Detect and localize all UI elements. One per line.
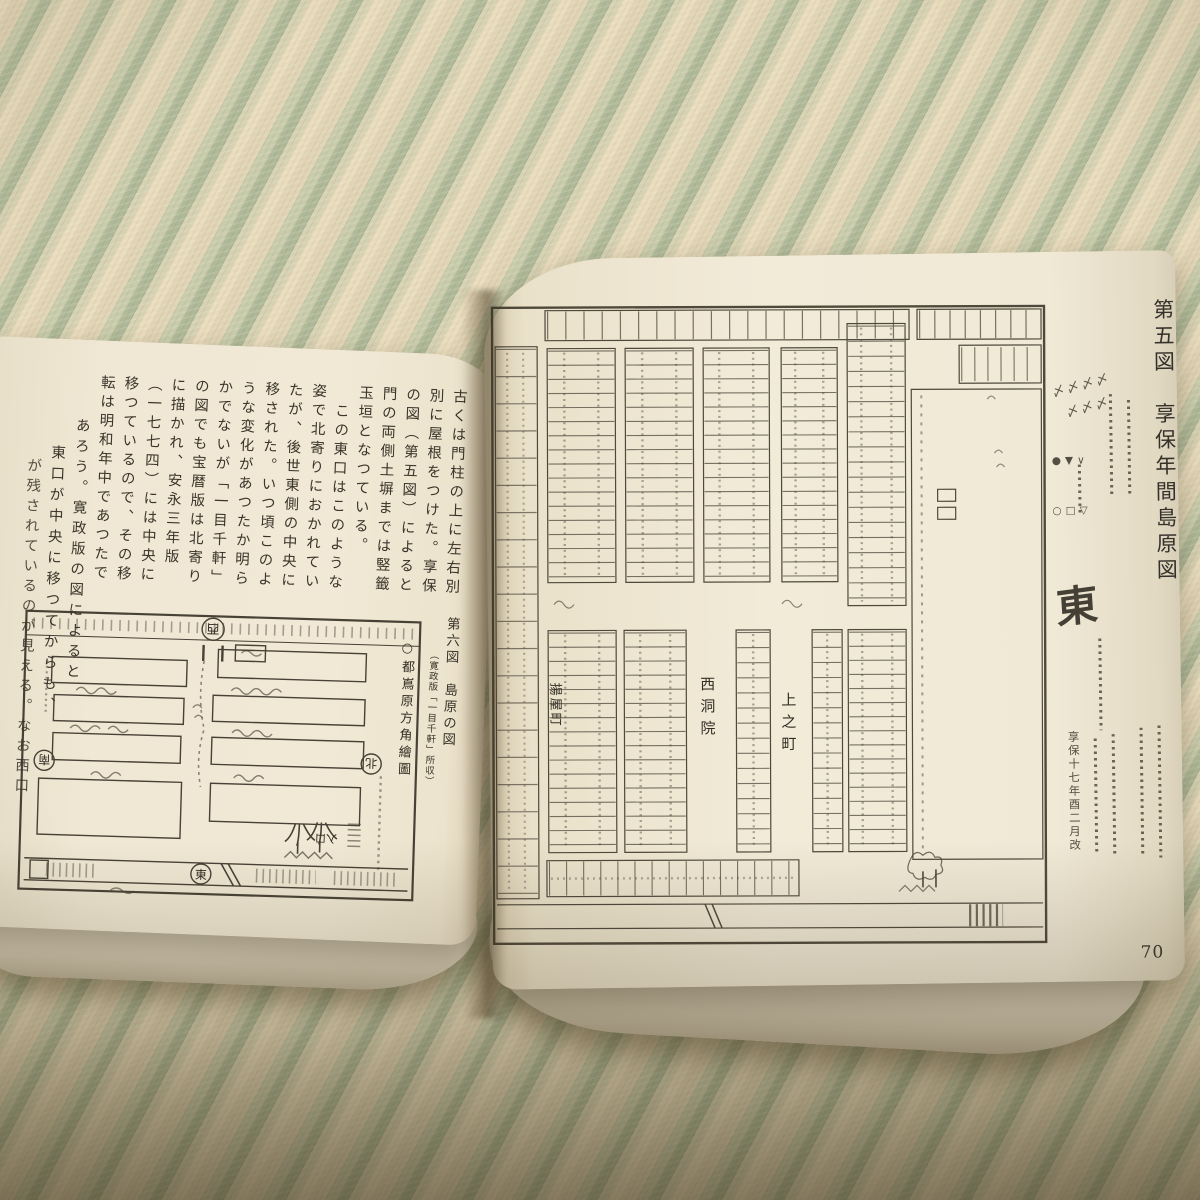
figure5-map: 西洞院 上之町 揚屋町 (489, 303, 1051, 950)
figure6-entrance-label: 入口 (315, 831, 337, 845)
street-label-nishinotoin: 西洞院 (697, 676, 718, 742)
street-label-ageyacho: 揚屋町 (547, 683, 566, 728)
legend-symbols: ○□▽ (1052, 504, 1091, 517)
cursive-note (1140, 728, 1145, 856)
page-number: 70 (1141, 942, 1165, 962)
legend-symbols: ●▼∨ (1052, 454, 1089, 467)
cursive-note (1098, 638, 1102, 730)
cursive-note (1109, 394, 1113, 494)
figure6-compass-north: 北 (365, 756, 377, 770)
cursive-note (1127, 400, 1131, 494)
east-direction-mark: 東 (1054, 570, 1100, 637)
figure6-compass-east: 東 (195, 868, 207, 882)
figure6-compass-west: 西 (206, 620, 219, 635)
map-date-note: 享保十七年酉二月改 (1066, 731, 1084, 853)
figure6-caption: 第六図 島原の図 (437, 616, 462, 749)
book-gutter-shadow (462, 290, 506, 1018)
left-page: 古くは門柱の上に左右別 別に屋根をつけた。享保 の図（第五図）によると 門の両側… (0, 336, 499, 946)
cursive-note (1094, 738, 1099, 854)
map-margin-annotations: 〆〆〆〆 〆〆〆 ●▼∨ ○□▽ 東 享保十七年酉二月改 (1050, 345, 1184, 927)
right-page: 第五図 享保年間島原図 70 (483, 250, 1185, 990)
figure6-compass-south: 南 (38, 752, 50, 767)
figure5-map-drawing (489, 303, 1051, 950)
figure6-map-drawing: 西 南 北 東 入口 (15, 608, 423, 905)
street-label-kaminocho: 上之町 (778, 692, 799, 758)
photo-of-open-book-on-tatami: 古くは門柱の上に左右別 別に屋根をつけた。享保 の図（第五図）によると 門の両側… (0, 0, 1200, 1200)
cursive-note (1112, 734, 1117, 856)
cursive-note (1158, 725, 1163, 857)
